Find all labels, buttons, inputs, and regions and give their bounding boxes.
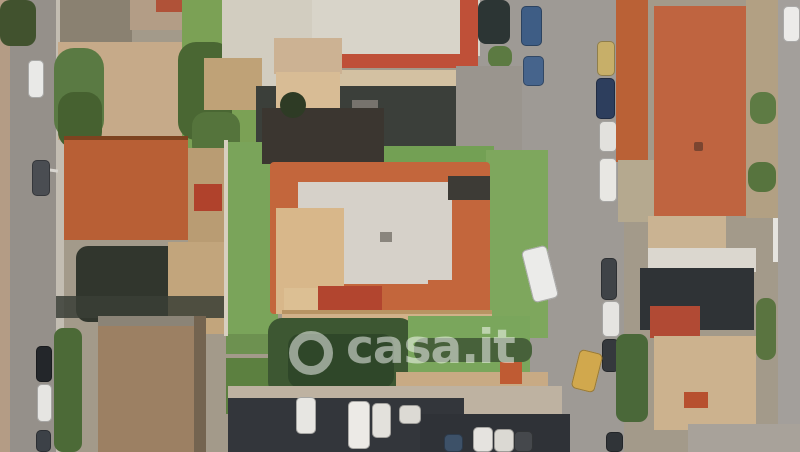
car-black-sw <box>36 346 52 382</box>
orange-kiosk <box>500 362 522 384</box>
top-left-roof-dark <box>60 0 132 42</box>
villa-roof-object <box>380 232 392 242</box>
car-dark-sw <box>36 430 51 452</box>
villa-wing-se <box>428 280 488 312</box>
southwest-building-wall <box>194 316 206 452</box>
villa-dark-roof-ne <box>448 176 490 200</box>
east-bush-1 <box>750 92 776 124</box>
south-garden-trees-dark <box>288 334 394 388</box>
car-gray-w <box>32 160 50 196</box>
southwest-building <box>98 316 196 452</box>
parked-car-7 <box>514 431 533 452</box>
bush-ne <box>488 46 512 68</box>
parked-car-6 <box>494 429 514 452</box>
narrow-roof-strip <box>616 0 648 162</box>
sidewalk-east-mid <box>618 160 656 222</box>
house-terracotta-roof <box>64 140 188 240</box>
car-blue-2 <box>523 56 544 86</box>
car-white-r3 <box>602 301 620 337</box>
chimney <box>694 142 703 151</box>
driveway <box>456 66 522 158</box>
car-white-r1 <box>599 121 617 152</box>
dark-trees-ne <box>478 0 510 44</box>
parked-car-3 <box>372 403 391 438</box>
southwest-building-ridge <box>98 316 196 326</box>
right-edge-road <box>778 0 800 452</box>
villa-round-tree <box>280 92 306 118</box>
courtyard-tan <box>204 58 262 110</box>
orange-hip-roof <box>654 6 752 216</box>
car-dark-r1 <box>601 258 617 300</box>
parked-car-2 <box>348 401 370 449</box>
bottom-right-concrete <box>688 424 800 452</box>
parked-car-1 <box>296 397 316 434</box>
parked-car-5 <box>473 427 493 452</box>
villa-north-building <box>274 38 342 74</box>
car-yellow-n <box>597 41 615 76</box>
east-terrace <box>654 336 756 430</box>
parked-car-4 <box>444 434 463 452</box>
villa-north-dark-roof <box>262 108 384 164</box>
left-edge-facades <box>0 0 10 452</box>
car-white-r2 <box>599 158 617 202</box>
villa-terrace-railing <box>282 310 492 314</box>
top-left-trees <box>0 0 36 46</box>
parked-van <box>399 405 421 424</box>
villa-wall-west <box>224 140 228 336</box>
hedge-sw <box>54 328 82 452</box>
satellite-image: casa.it <box>0 0 800 452</box>
car-dark-r3 <box>606 432 623 452</box>
car-blue-1 <box>521 6 542 46</box>
warehouse-red-tile-v <box>460 0 478 66</box>
hedge-east <box>616 334 648 422</box>
villa-lawn-east <box>486 150 548 338</box>
east-red-shed <box>684 392 708 408</box>
car-navy <box>596 78 615 119</box>
east-bush-3 <box>756 298 776 360</box>
south-hedge <box>414 338 532 362</box>
garden-shed-red <box>194 184 222 211</box>
east-red-roof <box>650 306 700 338</box>
car-white-ne <box>783 6 800 42</box>
car-white-nw <box>28 60 44 98</box>
shadow-band-sw <box>56 296 230 318</box>
east-tan-building <box>648 216 726 248</box>
east-bush-2 <box>748 162 776 192</box>
car-white-sw <box>37 384 52 422</box>
